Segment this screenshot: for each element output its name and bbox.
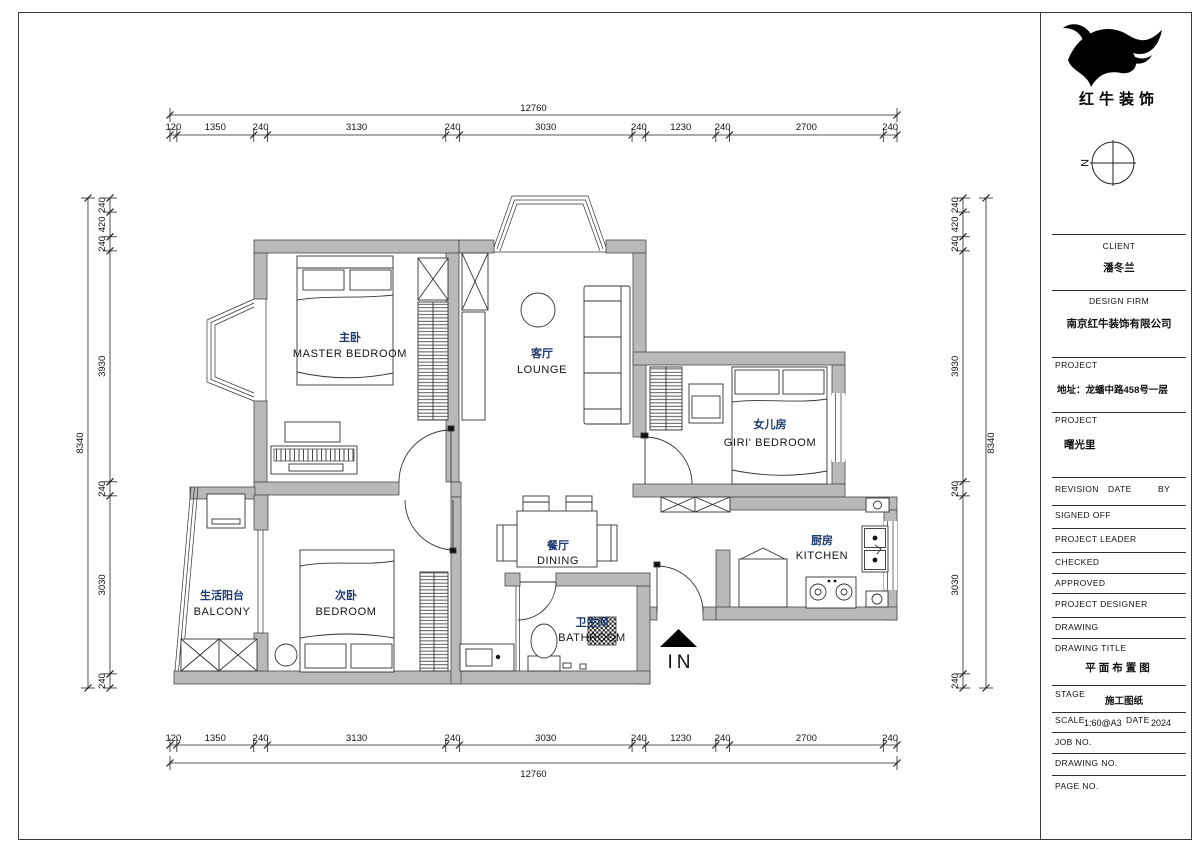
company-logo-bull-icon	[1063, 24, 1162, 87]
tb-rule	[1052, 552, 1186, 553]
entry-door	[654, 562, 703, 612]
svg-text:3030: 3030	[535, 122, 556, 133]
svg-text:3930: 3930	[97, 356, 108, 377]
client-label: CLIENT	[1052, 241, 1186, 251]
svg-text:240: 240	[715, 122, 731, 133]
room-label-kitchen-en: KITCHEN	[796, 550, 848, 562]
dimension-chain-left: 240420240393024030302408340	[75, 195, 117, 692]
svg-text:8340: 8340	[75, 432, 86, 453]
design-firm-label: DESIGN FIRM	[1052, 296, 1186, 306]
room-label-master-en: MASTER BEDROOM	[293, 348, 407, 360]
by-label: BY	[1158, 484, 1170, 494]
second-wardrobe	[420, 572, 448, 671]
lounge-column-cabinet	[462, 253, 488, 420]
master-piano	[271, 446, 357, 474]
tb-rule	[1052, 412, 1186, 413]
balcony-cabinet	[181, 639, 257, 671]
svg-text:3030: 3030	[97, 574, 108, 595]
svg-text:3130: 3130	[346, 122, 367, 133]
project-label: PROJECT	[1055, 360, 1097, 370]
room-label-kitchen-cn: 厨房	[811, 533, 833, 547]
room-label-balcony-cn: 生活阳台	[200, 588, 244, 602]
kitchen-stove	[806, 577, 856, 608]
date2-label: DATE	[1126, 715, 1150, 725]
svg-text:240: 240	[950, 197, 961, 213]
bathroom-door	[518, 582, 556, 620]
revision-label: REVISION	[1055, 484, 1099, 494]
tb-rule	[1052, 753, 1186, 754]
second-bed-nightstand	[275, 644, 297, 666]
tb-rule	[1052, 234, 1186, 235]
svg-text:240: 240	[97, 197, 108, 213]
dimension-chain-right: 240420240393024030302408340	[950, 195, 997, 692]
floor-plan: IN 主卧 MASTER BEDROOM 客厅 LOUNGE 女儿房 GIRI'…	[0, 0, 1040, 849]
stage-value: 施工图纸	[1105, 693, 1143, 707]
tb-rule	[1052, 477, 1186, 478]
dimension-chain-top: 1201350240313024030302401230240270024012…	[165, 103, 900, 142]
entrance-marker: IN	[660, 629, 697, 673]
svg-text:420: 420	[97, 217, 108, 233]
room-label-balcony-en: BALCONY	[194, 606, 251, 618]
approved-label: APPROVED	[1055, 578, 1105, 588]
tb-rule	[1052, 732, 1186, 733]
svg-text:3030: 3030	[535, 733, 556, 744]
second-bedroom-door	[405, 500, 456, 553]
date-label: DATE	[1108, 484, 1132, 494]
room-label-bathroom-cn: 卫生间	[576, 615, 609, 629]
svg-text:240: 240	[631, 122, 647, 133]
svg-text:8340: 8340	[986, 432, 997, 453]
room-label-girl-en: GIRI' BEDROOM	[724, 437, 816, 449]
drawing-title: 平面布置图	[1052, 660, 1186, 675]
north-label: N	[1078, 159, 1090, 167]
project-address: 地址：龙蟠中路458号一层	[1057, 382, 1168, 396]
svg-text:420: 420	[950, 217, 961, 233]
svg-text:240: 240	[97, 481, 108, 497]
entrance-label: IN	[668, 652, 695, 673]
svg-text:240: 240	[631, 733, 647, 744]
kitchen-sink	[862, 526, 888, 572]
checked-label: CHECKED	[1055, 557, 1099, 567]
kitchen-fridge	[739, 548, 787, 607]
job-no-label: JOB NO.	[1055, 737, 1092, 747]
svg-text:1230: 1230	[670, 122, 691, 133]
svg-text:240: 240	[445, 733, 461, 744]
room-label-master-cn: 主卧	[339, 330, 361, 344]
logo-and-north: N	[1040, 0, 1200, 230]
hall-cabinet	[661, 497, 730, 512]
svg-text:2700: 2700	[796, 122, 817, 133]
girls-desk	[689, 384, 723, 423]
svg-text:120: 120	[165, 122, 181, 133]
svg-text:120: 120	[165, 733, 181, 744]
svg-text:3030: 3030	[950, 574, 961, 595]
dimension-chain-bottom: 1201350240313024030302401230240270024012…	[165, 733, 900, 780]
washing-machine	[207, 494, 245, 528]
room-label-lounge-en: LOUNGE	[517, 364, 567, 376]
svg-text:3930: 3930	[950, 356, 961, 377]
tb-rule	[1052, 357, 1186, 358]
lounge-sofa	[584, 286, 630, 424]
svg-text:240: 240	[253, 122, 269, 133]
project-name: 曙光里	[1064, 437, 1096, 452]
girls-wardrobe	[650, 367, 682, 430]
signed-off-label: SIGNED OFF	[1055, 510, 1111, 520]
room-label-girl-cn: 女儿房	[754, 417, 787, 431]
svg-text:1350: 1350	[205, 733, 226, 744]
date-value: 2024	[1151, 718, 1171, 728]
vanity	[460, 644, 514, 671]
tb-rule	[1052, 638, 1186, 639]
page-no-label: PAGE NO.	[1055, 781, 1099, 791]
drawing-no-label: DRAWING NO.	[1055, 758, 1118, 768]
room-label-bedroom-cn: 次卧	[335, 588, 357, 602]
room-label-lounge-cn: 客厅	[530, 346, 553, 360]
tb-rule	[1052, 528, 1186, 529]
tb-rule	[1052, 617, 1186, 618]
svg-text:240: 240	[445, 122, 461, 133]
svg-text:240: 240	[97, 236, 108, 252]
scale-value: 1:60@A3	[1084, 718, 1122, 728]
svg-text:12760: 12760	[520, 769, 546, 780]
lounge-round-table	[521, 293, 555, 327]
room-label-dining-cn: 餐厅	[546, 538, 569, 552]
stage-label: STAGE	[1055, 689, 1085, 699]
tb-rule	[1052, 685, 1186, 686]
master-bed	[297, 256, 393, 385]
project2-label: PROJECT	[1055, 415, 1097, 425]
north-indicator: N	[1078, 140, 1136, 186]
drawing-sheet: IN 主卧 MASTER BEDROOM 客厅 LOUNGE 女儿房 GIRI'…	[0, 0, 1200, 849]
svg-text:240: 240	[950, 481, 961, 497]
svg-text:240: 240	[97, 673, 108, 689]
client-value: 潘冬兰	[1052, 260, 1186, 275]
master-wardrobe	[418, 258, 448, 420]
svg-text:2700: 2700	[796, 733, 817, 744]
svg-text:240: 240	[882, 122, 898, 133]
svg-text:12760: 12760	[520, 103, 546, 114]
svg-text:240: 240	[882, 733, 898, 744]
company-name: 红牛装饰	[1052, 88, 1186, 109]
svg-text:240: 240	[950, 236, 961, 252]
drawing-label: DRAWING	[1055, 622, 1099, 632]
drawing-title-label: DRAWING TITLE	[1055, 643, 1126, 653]
svg-text:240: 240	[715, 733, 731, 744]
svg-text:1230: 1230	[670, 733, 691, 744]
design-firm-value: 南京红牛装饰有限公司	[1052, 316, 1186, 331]
master-bench	[285, 422, 340, 442]
tb-rule	[1052, 573, 1186, 574]
svg-text:240: 240	[950, 673, 961, 689]
girls-bedroom-door	[641, 433, 692, 484]
tb-rule	[1052, 775, 1186, 776]
svg-text:3130: 3130	[346, 733, 367, 744]
svg-text:240: 240	[253, 733, 269, 744]
room-label-bedroom-en: BEDROOM	[315, 606, 376, 618]
svg-text:1350: 1350	[205, 122, 226, 133]
scale-label: SCALE	[1055, 715, 1085, 725]
tb-rule	[1052, 593, 1186, 594]
tb-rule	[1052, 712, 1186, 713]
tb-rule	[1052, 290, 1186, 291]
project-leader-label: PROJECT LEADER	[1055, 534, 1137, 544]
toilet	[528, 624, 560, 671]
project-designer-label: PROJECT DESIGNER	[1055, 599, 1148, 609]
room-label-bathroom-en: BATHROOM	[558, 632, 626, 644]
room-label-dining-en: DINING	[537, 555, 579, 567]
tb-rule	[1052, 505, 1186, 506]
